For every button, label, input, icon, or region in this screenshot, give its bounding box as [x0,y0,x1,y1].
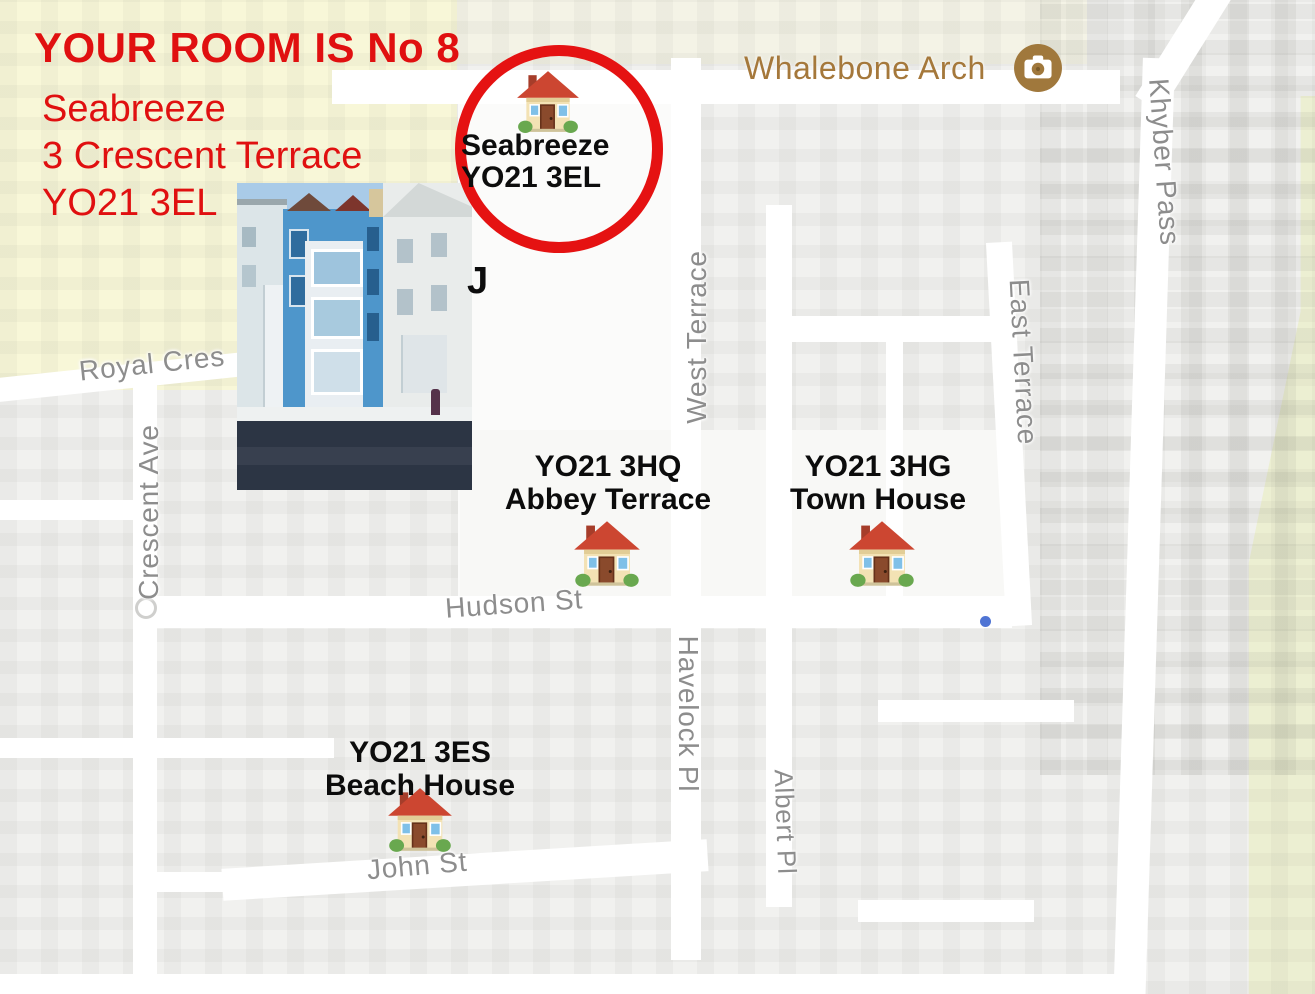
street-bottom [0,974,1132,994]
street-bottom-left-1 [0,738,334,758]
address-line-street: 3 Crescent Terrace [42,133,362,180]
map-blue-dot [980,616,991,627]
hidden-postcode-fragment: J [467,260,488,303]
target-house-label: Seabreeze YO21 3EL [461,130,609,194]
roundabout [135,597,157,619]
map-canvas[interactable]: Royal Cres Crescent Ave West Terrace Eas… [0,0,1315,994]
street-label-havelock-pl: Havelock Pl [672,636,704,793]
poi-whalebone-arch-label: Whalebone Arch [744,50,986,87]
target-house-name: Seabreeze [461,130,609,162]
target-house-postcode: YO21 3EL [461,162,609,194]
address-line-name: Seabreeze [42,86,362,133]
street-left-small [0,500,135,520]
property-name: Town House [790,483,966,516]
address-line-postcode: YO21 3EL [42,180,362,227]
property-postcode: YO21 3ES [325,736,515,769]
street-label-west-terrace: West Terrace [681,250,713,424]
street-bottom-left-2 [148,872,334,892]
house-icon [847,519,917,589]
street-top [332,70,1120,104]
property-label-town-house: YO21 3HG Town House [790,450,966,516]
street-label-crescent-ave: Crescent Ave [133,424,165,600]
house-icon [515,68,581,136]
photo-road [237,421,472,490]
property-postcode: YO21 3HQ [505,450,711,483]
property-label-abbey-terrace: YO21 3HQ Abbey Terrace [505,450,711,516]
property-postcode: YO21 3HG [790,450,966,483]
house-icon [572,519,642,589]
map-buildings-texture-right [1040,0,1315,775]
room-heading: YOUR ROOM IS No 8 [34,24,460,72]
address-block: Seabreeze 3 Crescent Terrace YO21 3EL [42,86,362,227]
photo-right-building [383,183,472,409]
photo-blue-building [283,209,383,411]
property-name: Beach House [325,769,515,802]
property-name: Abbey Terrace [505,483,711,516]
property-label-beach-house: YO21 3ES Beach House [325,736,515,802]
photo-left-building [237,199,287,411]
seabreeze-building-photo [237,183,472,490]
street-right-1 [878,700,1074,722]
street-label-albert-pl: Albert Pl [768,769,803,875]
camera-icon[interactable] [1013,43,1063,93]
street-right-2 [858,900,1034,922]
photo-person [431,389,440,415]
